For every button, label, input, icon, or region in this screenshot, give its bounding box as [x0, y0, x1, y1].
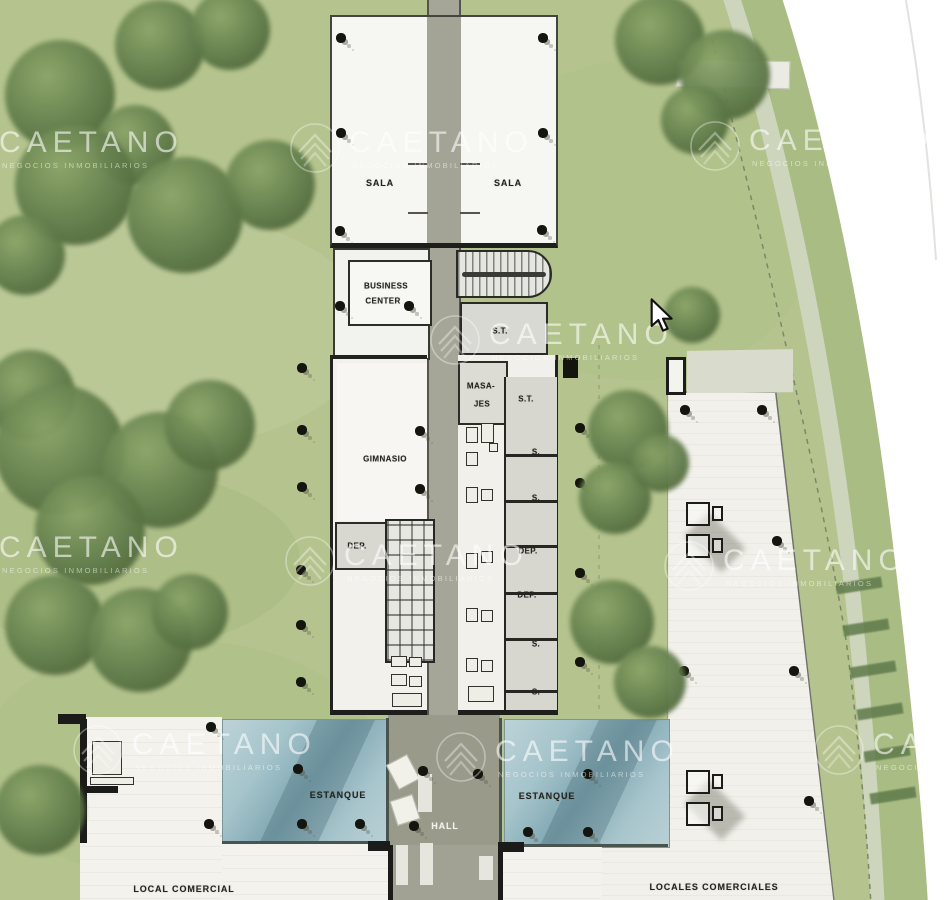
fixture [481, 610, 493, 622]
plan-label-s-: S. [532, 640, 540, 649]
table [686, 534, 710, 558]
business-center-room [348, 260, 432, 326]
column-dot [583, 769, 593, 779]
column-dot [789, 666, 799, 676]
column-dot [336, 128, 346, 138]
plan-label-masa-: MASA- [467, 382, 495, 391]
column-dot [297, 363, 307, 373]
paving-strip [479, 856, 493, 880]
column-dot [415, 426, 425, 436]
column-dot [473, 769, 483, 779]
column-dot [355, 819, 365, 829]
entry-jamb [368, 841, 390, 851]
tables-icon [684, 500, 736, 564]
tables-icon [684, 768, 736, 832]
column-dot [297, 482, 307, 492]
table [686, 802, 710, 826]
tower-corridor-gap [427, 17, 461, 243]
chair [712, 774, 723, 789]
fixture [90, 777, 134, 785]
plan-label-dep-: DEP. [517, 591, 536, 600]
plan-label-locales-comerciales: LOCALES COMERCIALES [649, 882, 778, 892]
tree [35, 475, 145, 585]
walkway-band [687, 349, 793, 394]
fixture [481, 551, 493, 563]
column-dot [335, 301, 345, 311]
fixture [409, 657, 422, 667]
tree [115, 0, 205, 90]
service-rooms-strip [504, 377, 557, 710]
hall-edge-wall [499, 718, 502, 845]
column-dot [204, 819, 214, 829]
column-dot [575, 657, 585, 667]
plan-label-estanque: ESTANQUE [310, 790, 367, 800]
column-dot [404, 301, 414, 311]
column-dot [415, 484, 425, 494]
chair [712, 538, 723, 553]
plan-label-estanque: ESTANQUE [519, 791, 576, 801]
fixture [466, 487, 478, 503]
plan-label-s-t-: S.T. [518, 395, 533, 404]
plan-label-center: CENTER [365, 297, 400, 306]
column-dot [418, 766, 428, 776]
paving-strip [396, 845, 408, 885]
hall-edge-wall [386, 718, 389, 845]
plan-label-jes: JES [474, 400, 490, 409]
tree [165, 380, 255, 470]
tree [152, 574, 228, 650]
fixture [466, 553, 478, 569]
plan-label-business: BUSINESS [364, 282, 408, 291]
plan-label-s-t-: S.T. [492, 327, 507, 336]
entry-wall [498, 845, 503, 900]
gimnasio-room [337, 363, 427, 521]
column-dot [409, 821, 419, 831]
fixture [489, 443, 498, 452]
door-mark [460, 163, 480, 165]
column-dot [575, 568, 585, 578]
stair-rail [462, 272, 546, 277]
column-dot [335, 226, 345, 236]
fixture [466, 608, 478, 622]
staircase [456, 250, 552, 298]
column-dot [206, 722, 216, 732]
plan-label-local-comercial: LOCAL COMERCIAL [133, 884, 234, 894]
table [686, 770, 710, 794]
plan-label-sala: SALA [366, 178, 394, 188]
door-mark [408, 212, 428, 214]
column-dot [293, 764, 303, 774]
floor-extension-right [502, 847, 602, 900]
fixture [481, 660, 493, 672]
column-dot [804, 796, 814, 806]
door-mark [408, 163, 428, 165]
mouse-cursor[interactable] [650, 298, 676, 334]
pond-edge [504, 844, 668, 847]
column-dot [336, 33, 346, 43]
tree [661, 86, 729, 154]
tree [631, 434, 689, 492]
plan-label-sala: SALA [494, 178, 522, 188]
entry-wall [388, 845, 393, 900]
column-dot [538, 128, 548, 138]
paving-strip [418, 774, 432, 812]
fixture [92, 741, 122, 775]
pond-edge [222, 841, 388, 844]
fixture [466, 427, 478, 443]
chair [712, 506, 723, 521]
column-dot [296, 677, 306, 687]
fixture [481, 489, 493, 501]
column-dot [523, 827, 533, 837]
column-dot [296, 565, 306, 575]
column-dot [297, 425, 307, 435]
fixture [481, 423, 494, 443]
fixture [466, 452, 478, 466]
elevator-core [385, 519, 435, 663]
tree [614, 646, 686, 718]
column-dot [757, 405, 767, 415]
fixture [466, 658, 478, 672]
column-dot [575, 423, 585, 433]
plan-label-s-: S. [532, 688, 540, 697]
door-mark [460, 212, 480, 214]
masajes-room [458, 361, 508, 425]
fixture [409, 676, 422, 687]
floor-extension-left [222, 843, 389, 900]
plan-label-hall: HALL [431, 821, 459, 831]
fixture [468, 686, 494, 702]
tower-block [330, 15, 558, 248]
column-dot [538, 33, 548, 43]
paving-strip [420, 843, 433, 885]
fixture [391, 656, 407, 667]
plan-label-s-: S. [532, 448, 540, 457]
table [686, 502, 710, 526]
fixture [392, 693, 422, 707]
plan-label-gimnasio: GIMNASIO [363, 455, 407, 464]
corner-column [563, 358, 578, 378]
plan-label-dep-: DEP. [347, 542, 366, 551]
chair [712, 806, 723, 821]
column-dot [680, 405, 690, 415]
tree [225, 140, 315, 230]
site-plan-image: SALASALABUSINESSCENTERS.T.MASA-JESS.T.GI… [0, 0, 944, 900]
planter-box [666, 357, 686, 395]
wall-stub [82, 786, 118, 793]
fixture [391, 674, 407, 686]
column-dot [537, 225, 547, 235]
plan-label-s-: S. [532, 494, 540, 503]
column-dot [772, 536, 782, 546]
column-dot [583, 827, 593, 837]
column-dot [297, 819, 307, 829]
column-dot [296, 620, 306, 630]
plan-label-dep-: DEP. [518, 547, 537, 556]
